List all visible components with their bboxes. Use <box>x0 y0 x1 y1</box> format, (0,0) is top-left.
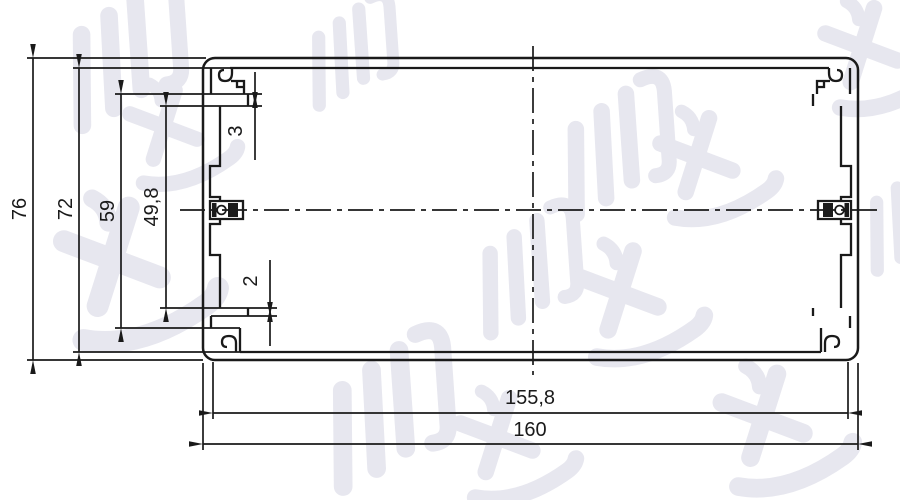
dim-label-overall-height: 76 <box>9 198 31 220</box>
technical-drawing-canvas: 鸿发顺达 <box>0 0 900 500</box>
centerlines <box>180 46 883 375</box>
watermark-glyph <box>293 0 413 105</box>
dim-label-inner-width: 155,8 <box>505 387 555 409</box>
profile-cross-section <box>203 58 858 360</box>
dim-label-overall-width: 160 <box>513 419 546 441</box>
dim-label-rail-outer-span: 59 <box>97 200 119 222</box>
watermark-glyph <box>460 201 600 332</box>
dim-label-top-rail-thickness: 3 <box>225 125 247 136</box>
dim-label-inner-height: 72 <box>55 198 77 220</box>
watermark-layer <box>43 0 900 500</box>
watermark-glyph <box>564 221 710 369</box>
dimension-labels: 76 72 59 49,8 3 2 155,8 160 <box>9 125 555 441</box>
watermark-glyph <box>43 170 225 354</box>
profile-outer-shell <box>203 58 858 360</box>
profile-drawing-svg: 76 72 59 49,8 3 2 155,8 160 <box>0 0 900 500</box>
dim-label-rail-inner-span: 49,8 <box>141 188 163 227</box>
watermark-glyph <box>704 342 859 499</box>
dim-label-bottom-rail-thickness: 2 <box>240 275 262 286</box>
